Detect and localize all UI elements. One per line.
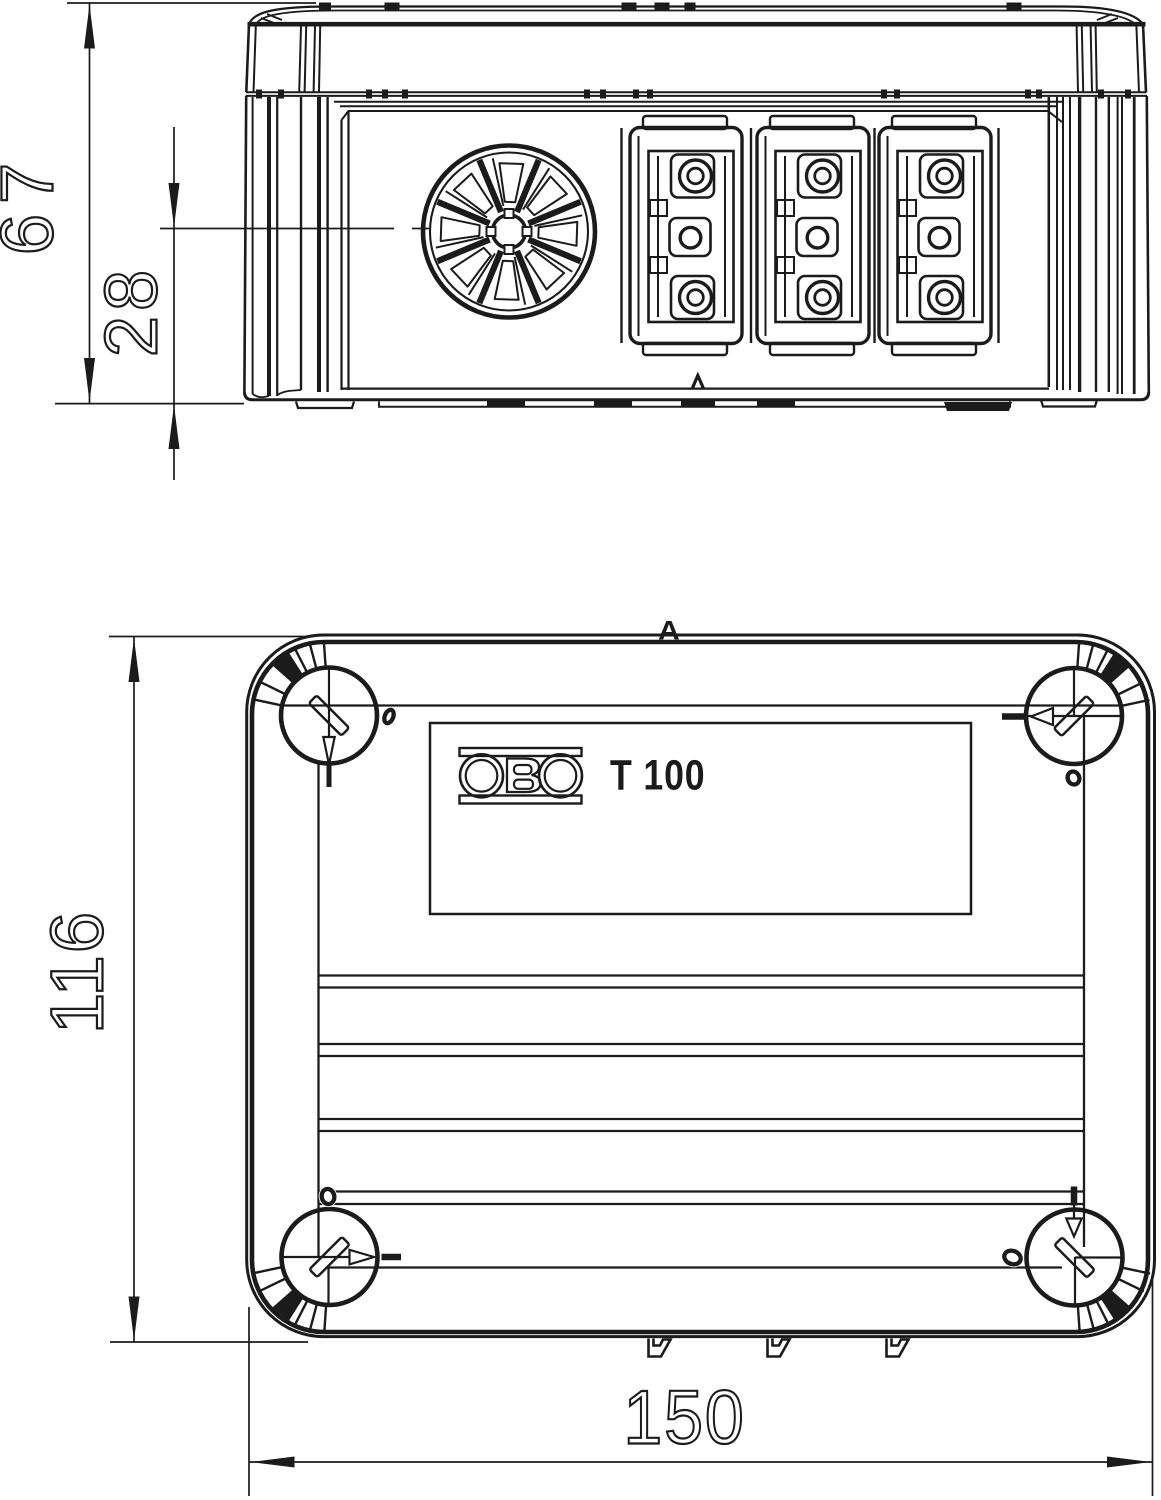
svg-text:T 100: T 100 [610,752,705,800]
svg-text:150: 150 [623,1376,745,1460]
svg-text:28: 28 [90,265,173,357]
svg-text:116: 116 [36,910,119,1034]
svg-text:A: A [658,616,680,646]
svg-text:67: 67 [0,153,69,255]
